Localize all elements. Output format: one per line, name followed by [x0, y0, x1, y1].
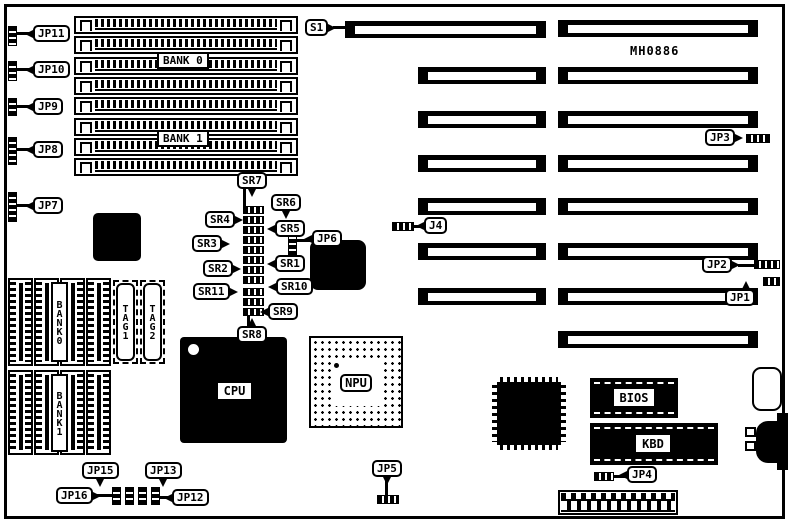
cache-bank0-text: BANK0: [53, 300, 66, 345]
qfp-ic: [497, 382, 561, 445]
jp8-callout: JP8: [33, 141, 63, 158]
isa-slot-left: [418, 155, 546, 172]
sr8-callout: SR8: [237, 326, 267, 343]
sr11-callout: SR11: [193, 283, 230, 300]
isa-slot-left: [418, 67, 546, 84]
sr3-callout: SR3: [192, 235, 222, 252]
cache-socket: [8, 370, 33, 455]
jp11-callout: JP11: [33, 25, 70, 42]
s1-callout: S1: [305, 19, 328, 36]
chipset-ic: [310, 240, 366, 290]
j4-callout: J4: [424, 217, 447, 234]
sr10-callout: SR10: [276, 278, 313, 295]
sr9-callout: SR9: [268, 303, 298, 320]
jp2-pins: [754, 260, 780, 269]
jp11-pins: [8, 26, 17, 46]
sr1-callout: SR1: [275, 255, 305, 272]
isa-slot-right: [558, 155, 758, 172]
jp9-callout: JP9: [33, 98, 63, 115]
simm-slot: [74, 77, 298, 95]
jp2-lead: [738, 264, 755, 267]
sr2-callout: SR2: [203, 260, 233, 277]
jp10-pins: [8, 61, 17, 81]
jp6-callout: JP6: [312, 230, 342, 247]
npu-label: NPU: [340, 374, 372, 392]
cache-socket: [8, 278, 33, 366]
simm-slot: [74, 97, 298, 115]
sr6-callout: SR6: [271, 194, 301, 211]
simm-bank1-label: BANK 1: [157, 130, 209, 147]
cache-socket: [86, 278, 111, 366]
isa-slot-left: [418, 111, 546, 128]
npu-pin1-marker: [334, 363, 339, 368]
jp13-callout: JP13: [145, 462, 182, 479]
kbd-connector-pin: [745, 427, 756, 437]
jp16-callout: JP16: [56, 487, 93, 504]
kbd-connector-pin: [745, 441, 756, 451]
resistor-pack: [243, 298, 264, 306]
jp10-callout: JP10: [33, 61, 70, 78]
isa-slot-left: [418, 288, 546, 305]
jp3-pins: [746, 134, 770, 143]
isa-slot-left: [345, 21, 546, 38]
jp12-callout: JP12: [172, 489, 209, 506]
jp16-pins: [112, 487, 121, 505]
jp3-callout: JP3: [705, 129, 735, 146]
kbd-controller-chip: KBD: [590, 423, 718, 465]
resistor-pack: [243, 266, 264, 274]
tag1-socket: TAG1: [113, 280, 138, 364]
bios-chip: BIOS: [590, 378, 678, 418]
jp1-pins: [763, 277, 780, 286]
logic-ic: [93, 213, 141, 261]
resistor-pack: [243, 246, 264, 254]
isa-slot-right: [558, 67, 758, 84]
jp7-callout: JP7: [33, 197, 63, 214]
tag2-socket: TAG2: [140, 280, 165, 364]
kbd-label: KBD: [636, 435, 670, 452]
jp8-pins: [8, 137, 17, 165]
tag1-label: TAG1: [120, 304, 131, 340]
cache-bank1-label: BANK1: [51, 374, 68, 452]
simm-bank0-label: BANK 0: [157, 52, 209, 69]
sr4-callout: SR4: [205, 211, 235, 228]
isa-slot-left: [418, 198, 546, 215]
isa-slot-right: [558, 331, 758, 348]
motherboard-diagram: BANK 0 BANK 1 JP11 JP10 JP9 JP8 JP7 MH08…: [0, 0, 791, 527]
jp1-callout: JP1: [725, 289, 755, 306]
jp15-pins: [125, 487, 134, 505]
jp4-pins: [594, 472, 614, 481]
board-part-number: MH0886: [630, 44, 679, 58]
sr5-callout: SR5: [275, 220, 305, 237]
resistor-pack: [243, 226, 264, 234]
resistor-pack: [243, 206, 264, 214]
resistor-pack: [243, 216, 264, 224]
power-connector: [558, 490, 678, 515]
simm-slot: [74, 16, 298, 34]
jp15-callout: JP15: [82, 462, 119, 479]
tag2-label: TAG2: [147, 304, 158, 340]
sr7-callout: SR7: [237, 172, 267, 189]
j4-pins: [392, 222, 414, 231]
cpu-chip: CPU: [180, 337, 287, 443]
jp5-callout: JP5: [372, 460, 402, 477]
npu-center-cavity: NPU: [331, 360, 381, 406]
jp5-pins: [377, 495, 399, 504]
npu-socket: NPU: [309, 336, 403, 428]
cache-socket: [86, 370, 111, 455]
isa-slot-right: [558, 111, 758, 128]
jp7-pins: [8, 192, 17, 222]
jp13-pins: [138, 487, 147, 505]
jp2-callout: JP2: [702, 256, 732, 273]
cpu-pin1-marker: [188, 344, 199, 355]
jp4-callout: JP4: [627, 466, 657, 483]
cpu-label: CPU: [218, 383, 251, 399]
resistor-pack: [243, 276, 264, 284]
isa-slot-right: [558, 198, 758, 215]
bios-label: BIOS: [614, 389, 654, 406]
isa-slot-left: [418, 243, 546, 260]
isa-slot-right: [558, 20, 758, 37]
resistor-pack: [243, 256, 264, 264]
resistor-pack: [243, 288, 264, 296]
kbd-din-connector: [756, 421, 782, 463]
resistor-pack: [243, 236, 264, 244]
cache-bank1-text: BANK1: [53, 391, 66, 436]
cache-bank0-label: BANK0: [51, 282, 68, 362]
battery-outline: [752, 367, 782, 411]
sr7-lead: [243, 189, 246, 207]
